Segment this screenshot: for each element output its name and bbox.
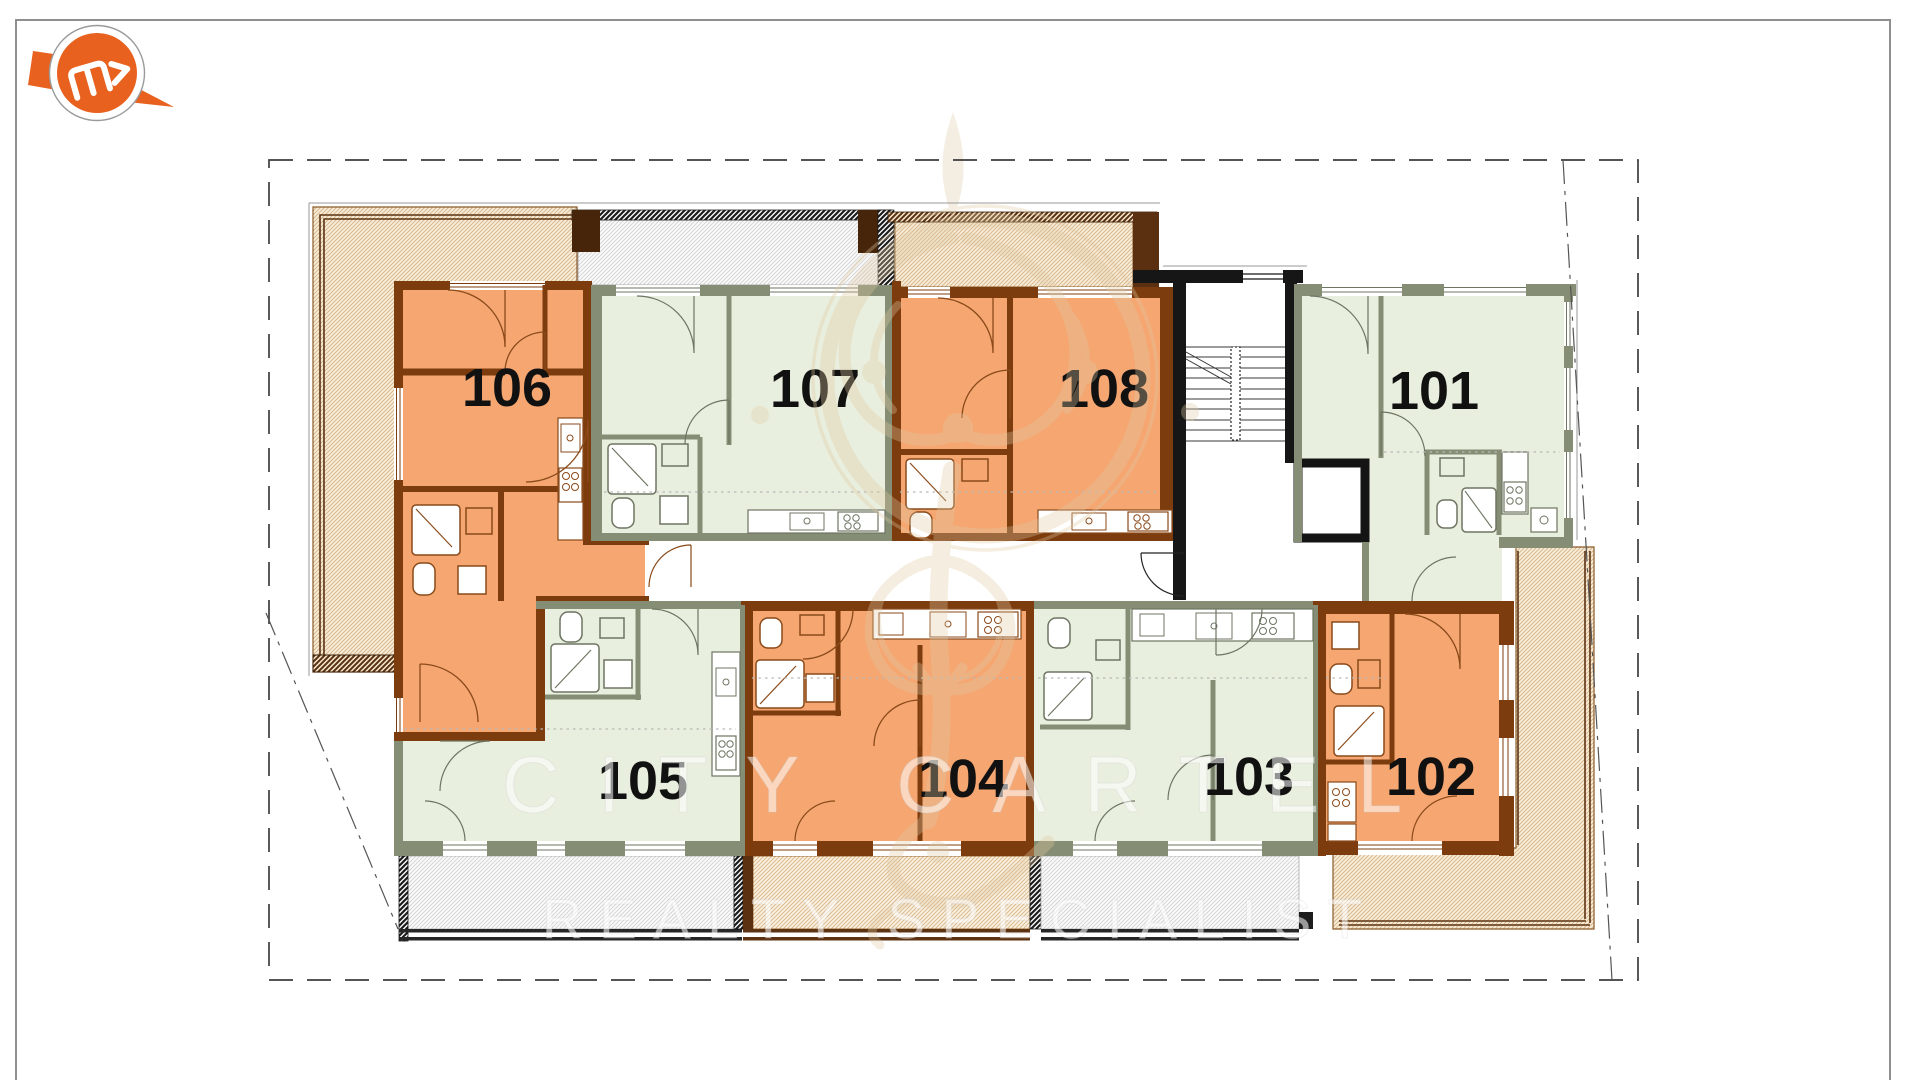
svg-text:101: 101 [1389,361,1479,421]
svg-text:106: 106 [462,358,552,418]
